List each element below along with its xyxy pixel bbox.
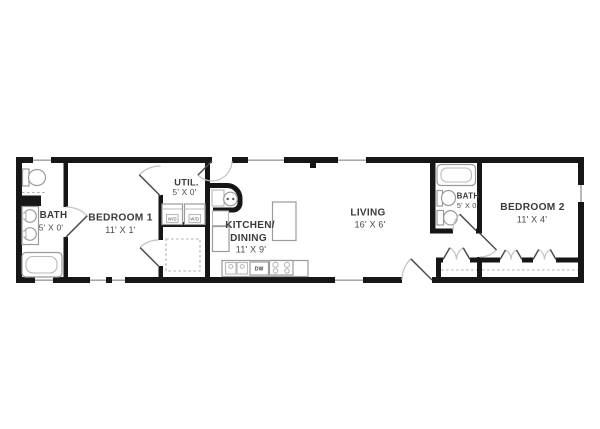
kitchen-name-line2: DINING xyxy=(230,233,267,244)
dishwasher-label: DW xyxy=(255,267,264,273)
kitchen-sink-icon xyxy=(226,263,248,275)
privacy-wall xyxy=(22,196,41,207)
bifold-door-hall-closet xyxy=(443,248,470,260)
bath-left-name: BATH xyxy=(40,210,68,221)
dryer-icon: W/D xyxy=(185,204,206,225)
living-dims: 16' X 6' xyxy=(354,220,385,230)
bath-left-dims: 5' X 0' xyxy=(39,223,64,233)
shelf-icon xyxy=(212,190,224,206)
bifold-door-bedroom2-closet-2 xyxy=(533,250,556,260)
bathtub-icon xyxy=(22,253,62,278)
bath-right-name: BATH xyxy=(457,192,480,201)
dishwasher-icon: DW xyxy=(250,262,269,275)
door-closet-bedroom1 xyxy=(140,240,158,266)
door-front-entry xyxy=(198,161,232,181)
bedroom1-dims: 11' X 1' xyxy=(105,225,135,235)
bathtub-icon xyxy=(437,165,476,186)
dryer-label: W/D xyxy=(190,217,199,222)
stove-icon xyxy=(270,261,294,276)
washer-icon: W/D xyxy=(162,204,183,225)
floor-plan-page: W/D W/D DW xyxy=(0,0,600,429)
closet-outline xyxy=(166,239,200,271)
washer-label: W/D xyxy=(168,217,177,222)
kitchen-name-line1: KITCHEN/ xyxy=(225,220,275,231)
wall-tick xyxy=(310,163,316,168)
util-dims: 5' X 0' xyxy=(173,187,197,197)
bifold-door-bedroom2-closet-1 xyxy=(500,250,522,260)
floor-plan-drawing: W/D W/D DW xyxy=(0,0,600,429)
kitchen-island xyxy=(273,202,297,241)
water-heater-icon xyxy=(224,192,238,206)
vanity-sinks-icon xyxy=(22,207,39,245)
door-utility xyxy=(139,166,160,196)
door-back-entry xyxy=(402,259,432,280)
util-name: UTIL. xyxy=(174,178,198,188)
bedroom2-name: BEDROOM 2 xyxy=(500,202,564,213)
sink-icon xyxy=(437,191,456,207)
door-bath-left xyxy=(66,207,87,237)
room-labels: BATH 5' X 0' BEDROOM 1 11' X 1' UTIL. 5'… xyxy=(39,178,565,255)
bath-right-dims: 5' X 0' xyxy=(457,201,479,210)
kitchen-dims: 11' X 9' xyxy=(236,245,266,255)
toilet-icon xyxy=(23,169,46,186)
living-name: LIVING xyxy=(350,208,385,219)
bedroom1-name: BEDROOM 1 xyxy=(88,213,152,224)
bedroom2-dims: 11' X 4' xyxy=(517,215,547,225)
door-bedroom2 xyxy=(480,233,497,257)
